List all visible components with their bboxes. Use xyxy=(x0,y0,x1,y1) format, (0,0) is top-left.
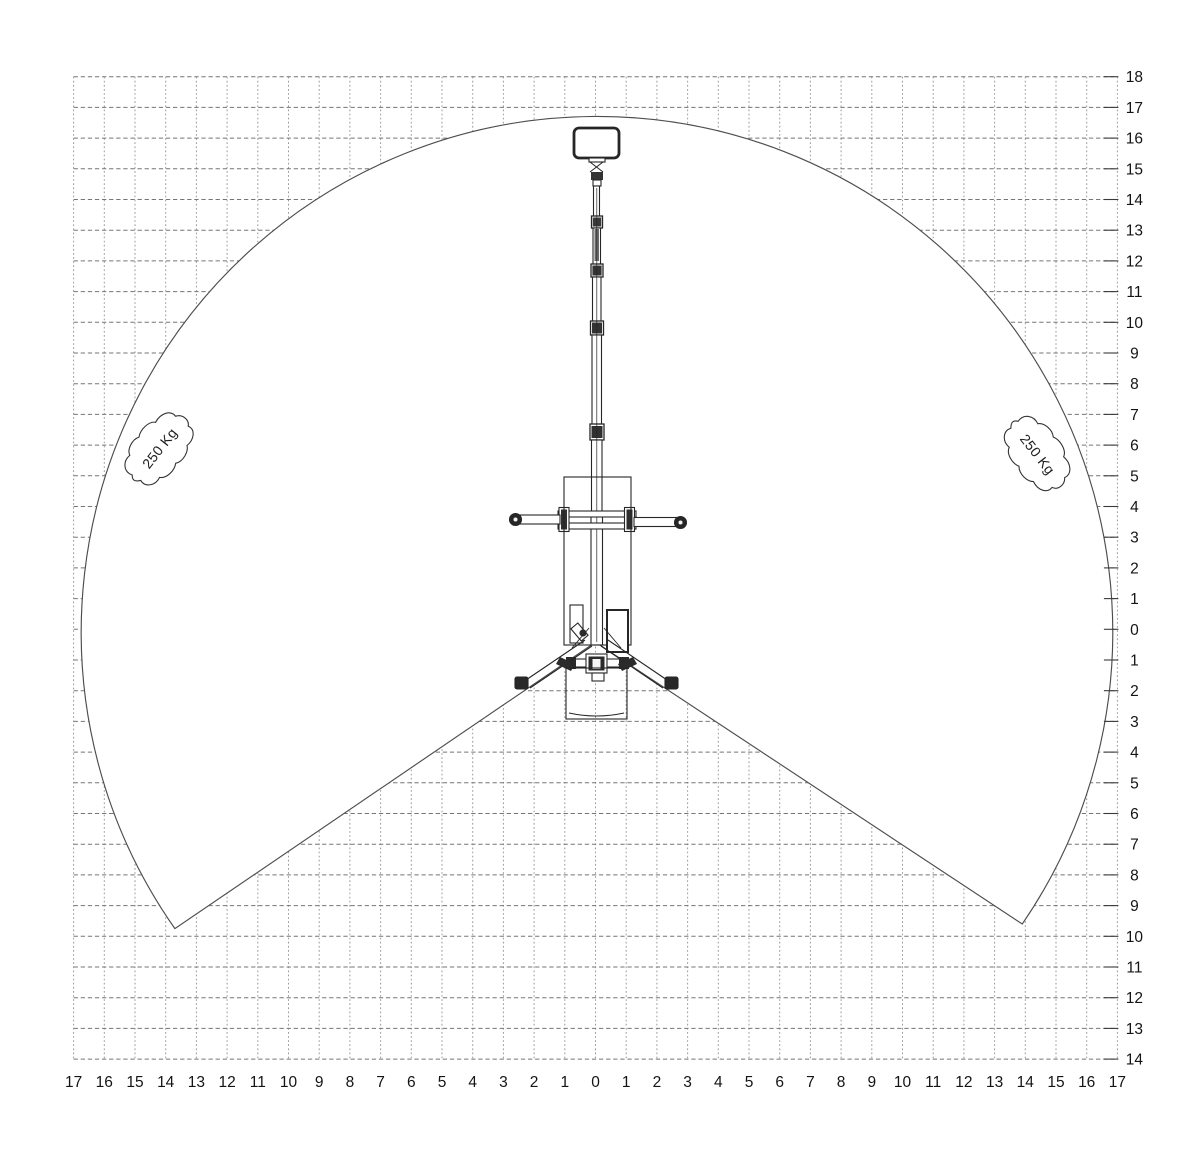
x-axis-label: 10 xyxy=(894,1074,912,1091)
x-axis-label: 7 xyxy=(376,1074,385,1091)
y-axis-label: 14 xyxy=(1126,1052,1144,1069)
stabilizer-foot-right xyxy=(665,677,678,689)
y-axis-label: 12 xyxy=(1126,990,1143,1007)
x-axis-label: 9 xyxy=(315,1074,324,1091)
y-axis-label: 17 xyxy=(1126,100,1143,117)
y-axis-label: 9 xyxy=(1130,346,1139,363)
y-axis-label: 1 xyxy=(1130,653,1139,670)
y-axis-label: 8 xyxy=(1130,376,1139,393)
x-axis-label: 11 xyxy=(250,1074,266,1091)
envelope-diagram-svg: 250 Kg250 Kg 171615141312111098765432101… xyxy=(0,0,1200,1152)
x-axis-label: 8 xyxy=(346,1074,355,1091)
x-axis-label: 10 xyxy=(280,1074,298,1091)
x-axis-label: 14 xyxy=(157,1074,175,1091)
y-axis-label: 11 xyxy=(1126,284,1142,301)
x-axis-label: 14 xyxy=(1017,1074,1035,1091)
x-axis-label: 6 xyxy=(775,1074,784,1091)
x-axis-label: 13 xyxy=(188,1074,205,1091)
y-axis-label: 18 xyxy=(1126,69,1143,86)
stabilizer-foot-left xyxy=(515,677,528,689)
x-axis-label: 8 xyxy=(837,1074,846,1091)
y-axis-label: 4 xyxy=(1130,499,1139,516)
x-axis-label: 3 xyxy=(683,1074,692,1091)
x-axis-label: 16 xyxy=(1078,1074,1095,1091)
x-axis-label: 2 xyxy=(530,1074,539,1091)
x-axis-label: 2 xyxy=(653,1074,662,1091)
x-axis-label: 4 xyxy=(714,1074,723,1091)
y-axis-label: 16 xyxy=(1126,131,1143,148)
x-axis-label: 6 xyxy=(407,1074,416,1091)
y-axis-label: 5 xyxy=(1130,775,1139,792)
x-axis-label: 17 xyxy=(65,1074,82,1091)
x-axis-label: 16 xyxy=(96,1074,113,1091)
y-axis-label: 0 xyxy=(1130,622,1139,639)
y-axis-label: 4 xyxy=(1130,745,1139,762)
x-axis-label: 5 xyxy=(438,1074,447,1091)
y-axis-label: 10 xyxy=(1126,315,1144,332)
y-axis-label: 6 xyxy=(1130,806,1139,823)
platform-basket xyxy=(574,128,619,158)
y-axis-label: 13 xyxy=(1126,223,1143,240)
x-axis-label: 13 xyxy=(986,1074,1003,1091)
x-axis-label: 5 xyxy=(745,1074,754,1091)
y-axis-label: 3 xyxy=(1130,714,1139,731)
y-axis-label: 1 xyxy=(1130,591,1139,608)
x-axis-label: 12 xyxy=(218,1074,235,1091)
y-axis-label: 15 xyxy=(1126,161,1143,178)
y-axis-label: 2 xyxy=(1130,560,1139,577)
working-envelope-diagram: 250 Kg250 Kg 171615141312111098765432101… xyxy=(0,0,1200,1152)
y-axis-label: 7 xyxy=(1130,837,1139,854)
x-axis-label: 15 xyxy=(126,1074,143,1091)
x-axis-label: 0 xyxy=(591,1074,600,1091)
x-axis-label: 1 xyxy=(560,1074,569,1091)
y-axis-label: 5 xyxy=(1130,468,1139,485)
y-axis-label: 9 xyxy=(1130,898,1139,915)
y-axis-label: 10 xyxy=(1126,929,1144,946)
y-axis-label: 13 xyxy=(1126,1021,1143,1038)
y-axis-label: 2 xyxy=(1130,683,1139,700)
x-axis-label: 4 xyxy=(468,1074,477,1091)
y-axis-label: 6 xyxy=(1130,438,1139,455)
x-axis-label: 17 xyxy=(1109,1074,1126,1091)
outrigger-beam-right xyxy=(634,518,678,527)
y-axis-label: 11 xyxy=(1126,960,1142,977)
equipment-box-right xyxy=(607,610,628,652)
x-axis-label: 11 xyxy=(925,1074,941,1091)
outrigger-beam-left xyxy=(517,515,560,524)
x-axis-label: 15 xyxy=(1047,1074,1064,1091)
x-axis-label: 3 xyxy=(499,1074,508,1091)
x-axis-label: 12 xyxy=(955,1074,972,1091)
y-axis-label: 7 xyxy=(1130,407,1139,424)
x-axis-label: 1 xyxy=(622,1074,631,1091)
y-axis-label: 3 xyxy=(1130,530,1139,547)
y-axis-label: 12 xyxy=(1126,253,1143,270)
y-axis-label: 8 xyxy=(1130,867,1139,884)
y-axis-label: 14 xyxy=(1126,192,1144,209)
x-axis-label: 9 xyxy=(867,1074,876,1091)
x-axis-label: 7 xyxy=(806,1074,815,1091)
